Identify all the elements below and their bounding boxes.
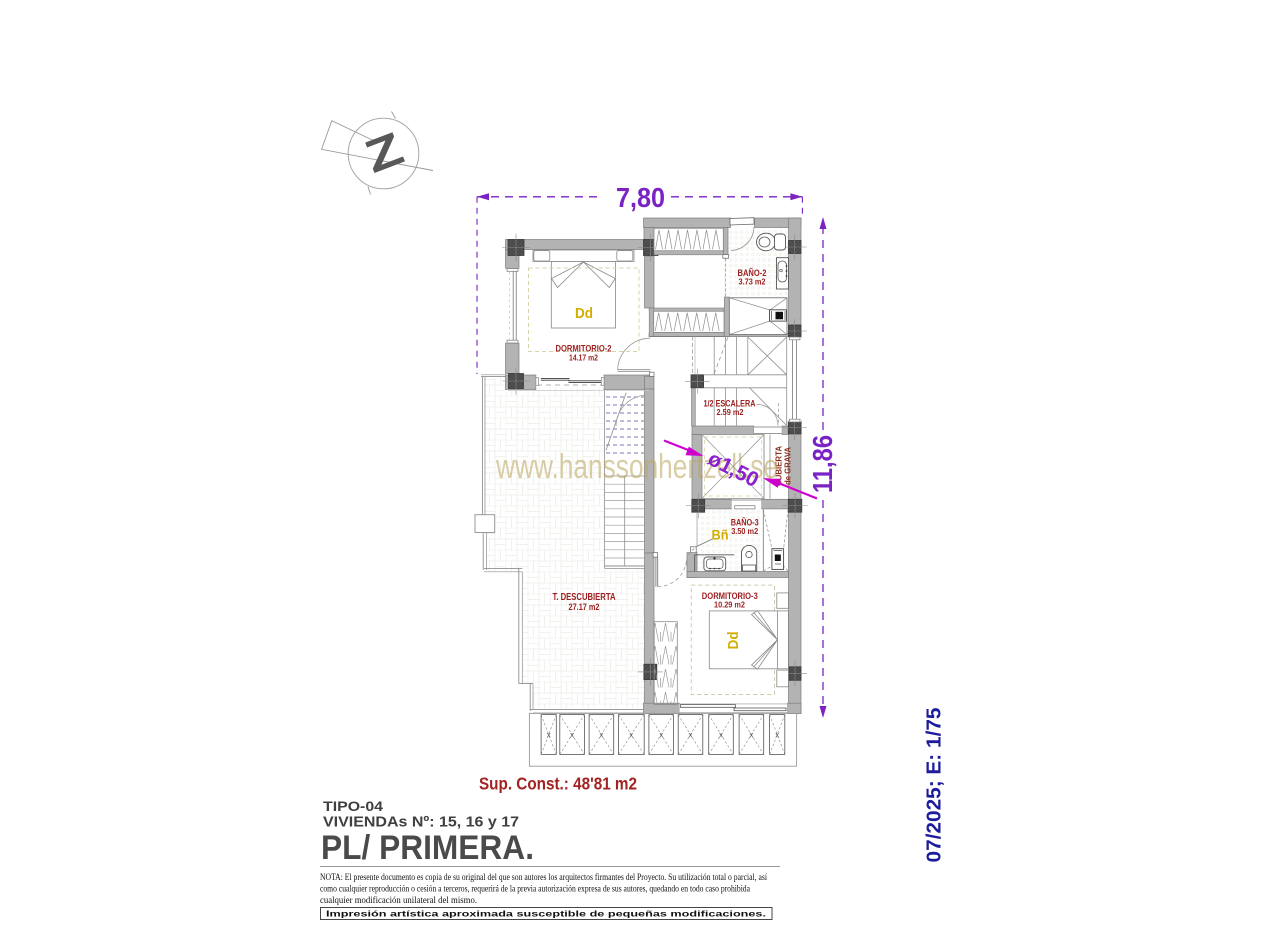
svg-text:11,86: 11,86: [807, 435, 838, 493]
svg-text:7,80: 7,80: [616, 182, 665, 213]
svg-text:x: x: [689, 731, 693, 740]
svg-text:NOTA: El presente documento es: NOTA: El presente documento es copia de …: [320, 872, 767, 883]
svg-text:07/2025; E: 1/75: 07/2025; E: 1/75: [924, 708, 946, 863]
svg-text:3.73 m2: 3.73 m2: [739, 277, 766, 287]
svg-text:10.29 m2: 10.29 m2: [714, 600, 745, 610]
svg-text:como cualquier reproducción o: como cualquier reproducción o cesión a t…: [320, 885, 750, 895]
svg-text:PL/ PRIMERA.: PL/ PRIMERA.: [321, 829, 534, 867]
svg-text:x: x: [629, 731, 633, 740]
svg-text:x: x: [599, 731, 603, 740]
svg-text:de GRAVA: de GRAVA: [784, 447, 793, 485]
svg-text:TIPO-04: TIPO-04: [323, 798, 383, 814]
svg-text:x: x: [570, 731, 574, 740]
svg-text:2.59 m2: 2.59 m2: [717, 407, 744, 417]
svg-text:3.50 m2: 3.50 m2: [731, 526, 758, 536]
svg-text:14.17 m2: 14.17 m2: [569, 353, 598, 363]
svg-text:VIVIENDAs Nº: 15, 16 y 17: VIVIENDAs Nº: 15, 16 y 17: [323, 814, 519, 831]
svg-text:x: x: [547, 731, 551, 740]
svg-text:Impresión artística aproxima: Impresión artística aproximada susceptib…: [326, 909, 766, 919]
svg-text:x: x: [775, 731, 779, 740]
svg-text:Sup. Const.: 48'81 m2: Sup. Const.: 48'81 m2: [479, 774, 637, 794]
svg-text:x: x: [659, 731, 663, 740]
svg-text:27.17 m2: 27.17 m2: [569, 602, 600, 612]
svg-text:Dd: Dd: [726, 631, 742, 649]
svg-text:Bñ: Bñ: [712, 527, 729, 543]
svg-text:x: x: [719, 731, 723, 740]
svg-text:cualquier modificación unilate: cualquier modificación unilateral del mi…: [320, 895, 477, 906]
svg-text:Dd: Dd: [575, 306, 593, 322]
svg-text:x: x: [749, 731, 753, 740]
